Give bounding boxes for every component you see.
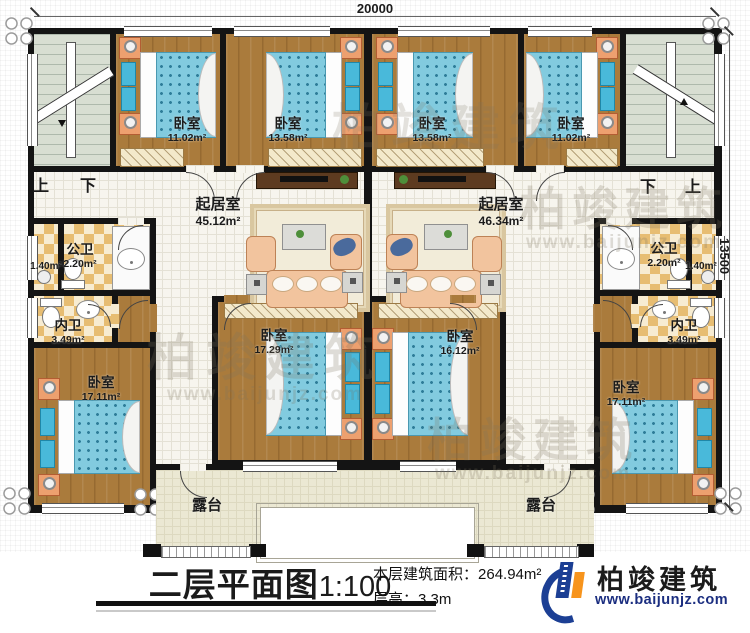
bed-cushion-icon — [345, 87, 360, 111]
plan-title-text: 二层平面图 — [149, 566, 319, 603]
sofa-cushion-icon — [430, 276, 452, 292]
room-name: 起居室 — [478, 196, 523, 214]
bed-cushion-icon — [378, 87, 393, 111]
room-area: 17.29m² — [254, 344, 293, 356]
window — [714, 298, 725, 338]
door-opening — [149, 304, 157, 332]
sink-icon — [117, 248, 145, 270]
nightstand-icon — [38, 378, 60, 400]
bed-pillow-icon — [324, 332, 342, 436]
sofa-cushion-icon — [320, 276, 342, 292]
nightstand-icon — [372, 328, 394, 350]
side-table-icon — [342, 272, 363, 293]
floor-height-line: 层高：3.3m — [373, 588, 451, 609]
nightstand-icon — [596, 37, 618, 59]
bed-cushion-icon — [40, 440, 55, 468]
dimension-right: 13500 — [717, 238, 732, 274]
column-ornament-icon — [713, 486, 743, 516]
stair-label-down-left: 下 — [80, 172, 96, 196]
room-label-living-right: 起居室 46.34m² — [478, 196, 523, 228]
stair-label-up-right: 上 — [685, 173, 701, 197]
room-area: 11.02m² — [552, 132, 591, 144]
room-name: 公卫 — [647, 241, 680, 257]
stair-arrow-icon — [680, 98, 688, 105]
bed-cushion-icon — [345, 62, 360, 86]
window — [234, 26, 330, 37]
room-name: 卧室 — [607, 380, 646, 396]
nightstand-icon — [340, 37, 362, 59]
brand-logo-icon — [540, 556, 594, 614]
side-table-icon — [480, 274, 501, 295]
floor-height-value: 3.3m — [418, 591, 451, 608]
terrace-pillar — [143, 544, 161, 557]
bed-cushion-icon — [600, 87, 615, 111]
stair-label-down-right: 下 — [640, 173, 656, 197]
room-label-shower-left: 1.40m² — [30, 261, 62, 273]
door-opening — [224, 295, 250, 303]
door-opening — [544, 463, 570, 471]
room-area: 45.12m² — [195, 214, 240, 228]
door-opening — [593, 304, 601, 332]
brand-url: www.baijunjz.com — [595, 592, 747, 608]
sink-icon — [607, 248, 635, 270]
room-name: 卧室 — [254, 328, 293, 344]
side-table-icon — [246, 274, 267, 295]
floor-plan-page: { "plan": { "dim_top": "20000", "dim_rig… — [0, 0, 750, 625]
window — [400, 461, 456, 472]
room-label-bedroom-b1: 卧室 13.58m² — [412, 116, 451, 144]
bed-cushion-icon — [378, 62, 393, 86]
window — [714, 54, 725, 146]
flower-icon — [296, 230, 304, 238]
bed-cushion-icon — [40, 408, 55, 436]
room-label-public-bath-right: 公卫 2.20m² — [647, 241, 680, 269]
nightstand-icon — [340, 418, 362, 440]
bed-cushion-icon — [121, 87, 136, 111]
column-ornament-icon — [4, 16, 34, 46]
side-table-icon — [386, 272, 407, 293]
room-name: 卧室 — [82, 375, 121, 391]
tv-icon — [418, 176, 466, 182]
room-name: 露台 — [192, 497, 222, 515]
nightstand-icon — [376, 37, 398, 59]
bed-cushion-icon — [697, 408, 712, 436]
tv-icon — [280, 176, 328, 182]
bed-cushion-icon — [600, 62, 615, 86]
bed-cushion-icon — [375, 384, 390, 414]
building-area-label: 本层建筑面积： — [373, 566, 478, 583]
room-area: 17.11m² — [607, 396, 646, 408]
window — [42, 503, 124, 514]
floor-height-label: 层高： — [373, 591, 418, 608]
room-label-bedroom-c1: 卧室 17.11m² — [82, 375, 121, 403]
dimension-top: 20000 — [330, 1, 420, 16]
window — [528, 26, 592, 37]
room-label-bedroom-b2: 卧室 11.02m² — [552, 116, 591, 144]
armchair-icon — [472, 236, 502, 272]
room-area: 2.20m² — [63, 258, 96, 270]
nightstand-icon — [340, 113, 362, 135]
room-name: 卧室 — [168, 116, 207, 132]
terrace-railing — [161, 546, 251, 558]
room-living-right-corridor — [506, 296, 594, 464]
coffee-table-icon — [282, 224, 326, 250]
room-name: 卧室 — [412, 116, 451, 132]
column-ornament-icon — [701, 16, 731, 46]
bed-cushion-icon — [345, 352, 360, 382]
stair-arrow-icon — [58, 120, 66, 127]
sofa-cushion-icon — [406, 276, 428, 292]
room-label-bedroom-a2: 卧室 13.58m² — [268, 116, 307, 144]
window — [626, 503, 708, 514]
room-area: 1.40m² — [685, 261, 717, 273]
door-opening — [111, 304, 119, 328]
dimension-top-line — [34, 16, 716, 17]
terrace-pillar — [467, 544, 484, 557]
sofa-cushion-icon — [454, 276, 476, 292]
window — [27, 236, 38, 280]
room-label-bedroom-d1: 卧室 17.29m² — [254, 328, 293, 356]
room-label-bedroom-d2: 卧室 16.12m² — [440, 329, 479, 357]
room-area: 2.20m² — [647, 257, 680, 269]
room-label-shower-right: 1.40m² — [685, 261, 717, 273]
room-name: 露台 — [526, 497, 556, 515]
armchair-icon — [246, 236, 276, 272]
bed-cushion-icon — [697, 440, 712, 468]
window — [243, 461, 337, 472]
wardrobe-icon — [566, 148, 618, 167]
door-opening — [631, 304, 639, 328]
room-label-terrace-left: 露台 — [192, 497, 222, 515]
nightstand-icon — [38, 474, 60, 496]
door-opening — [606, 217, 632, 225]
toilet-icon — [667, 280, 691, 289]
room-name: 公卫 — [63, 242, 96, 258]
nightstand-icon — [119, 37, 141, 59]
room-area: 46.34m² — [478, 214, 523, 228]
room-name: 卧室 — [268, 116, 307, 132]
terrace-pillar — [249, 544, 266, 557]
nightstand-icon — [692, 474, 714, 496]
room-area: 13.58m² — [412, 132, 451, 144]
building-area-value: 264.94m² — [478, 566, 541, 583]
stair-label-up-left: 上 — [33, 172, 49, 196]
sofa-cushion-icon — [296, 276, 318, 292]
room-label-bedroom-a1: 卧室 11.02m² — [168, 116, 207, 144]
flower-icon — [444, 230, 452, 238]
nightstand-icon — [119, 113, 141, 135]
bed-cushion-icon — [121, 62, 136, 86]
room-living-left-corridor — [156, 296, 212, 464]
room-area: 17.11m² — [82, 391, 121, 403]
window — [398, 26, 490, 37]
room-area: 11.02m² — [168, 132, 207, 144]
nightstand-icon — [372, 418, 394, 440]
terrace-open-well — [260, 507, 475, 559]
wardrobe-icon — [268, 148, 362, 167]
bed-pillow-icon — [676, 400, 694, 474]
nightstand-icon — [596, 113, 618, 135]
column-ornament-icon — [2, 486, 32, 516]
title-underline-light — [96, 610, 436, 612]
wardrobe-icon — [376, 148, 484, 167]
room-area: 1.40m² — [30, 261, 62, 273]
nightstand-icon — [376, 113, 398, 135]
bed-cushion-icon — [345, 384, 360, 414]
window — [27, 298, 38, 338]
wardrobe-icon — [120, 148, 184, 167]
room-label-inner-bath-left: 内卫 3.49m² — [51, 318, 84, 346]
room-name: 卧室 — [440, 329, 479, 345]
bed-pillow-icon — [324, 52, 342, 138]
room-name: 起居室 — [195, 196, 240, 214]
nightstand-icon — [340, 328, 362, 350]
room-name: 内卫 — [667, 318, 700, 334]
room-name: 卧室 — [552, 116, 591, 132]
nightstand-icon — [692, 378, 714, 400]
window — [27, 54, 38, 146]
room-area: 3.49m² — [667, 334, 700, 346]
toilet-icon — [61, 280, 85, 289]
room-label-bedroom-c2: 卧室 17.11m² — [607, 380, 646, 408]
room-label-living-left: 起居室 45.12m² — [195, 196, 240, 228]
sofa-cushion-icon — [272, 276, 294, 292]
door-opening — [118, 217, 144, 225]
room-area: 13.58m² — [268, 132, 307, 144]
plant-icon — [399, 175, 408, 184]
plant-icon — [340, 175, 349, 184]
room-label-inner-bath-right: 内卫 3.49m² — [667, 318, 700, 346]
door-opening — [180, 463, 206, 471]
room-label-terrace-right: 露台 — [526, 497, 556, 515]
logo-tower-windows — [560, 565, 568, 595]
bed-cushion-icon — [375, 352, 390, 382]
room-label-public-bath-left: 公卫 2.20m² — [63, 242, 96, 270]
room-area: 3.49m² — [51, 334, 84, 346]
room-name: 内卫 — [51, 318, 84, 334]
room-area: 16.12m² — [440, 345, 479, 357]
window — [124, 26, 212, 37]
door-opening — [450, 295, 476, 303]
building-area-line: 本层建筑面积：264.94m² — [373, 563, 541, 584]
